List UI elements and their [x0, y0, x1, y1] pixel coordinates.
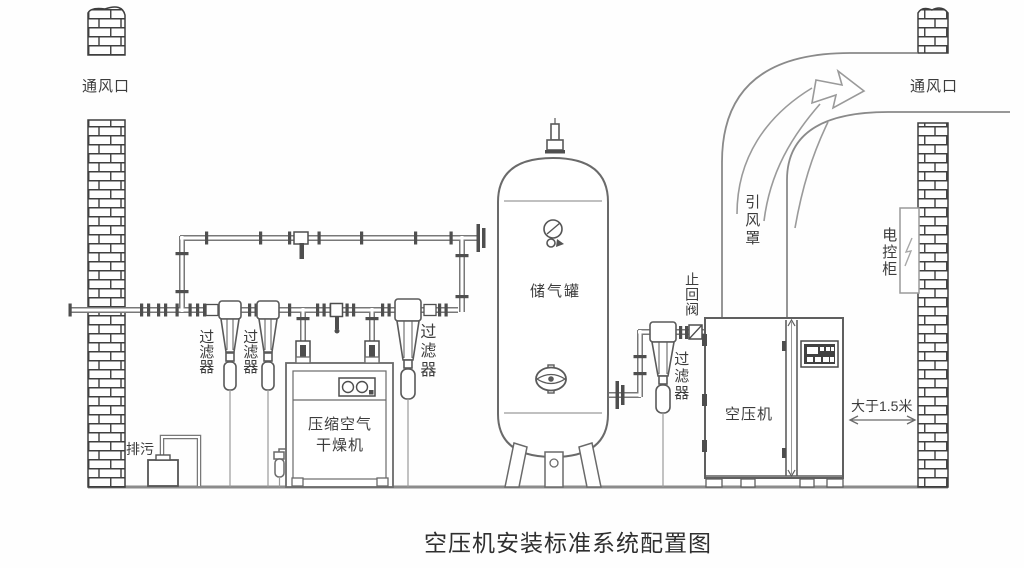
air-tank	[498, 158, 608, 487]
control-cabinet-label: 电控柜	[880, 227, 897, 278]
filter-1-label: 过滤器	[197, 329, 214, 374]
dryer-label-line1: 压缩空气	[287, 414, 393, 435]
dryer-label-line2: 干燥机	[287, 435, 393, 456]
duct-hood-label: 引风罩	[743, 194, 760, 248]
filter-4-label: 过滤器	[672, 351, 689, 402]
compressor-label: 空压机	[725, 406, 773, 423]
control-cabinet-box	[900, 208, 919, 293]
drain-collection	[148, 437, 199, 486]
dryer-panel	[339, 378, 375, 396]
tank-top-valve	[545, 118, 565, 154]
duct-hood-outline	[722, 53, 1010, 318]
diagram-title: 空压机安装标准系统配置图	[388, 524, 748, 558]
compressor-control-panel	[801, 341, 838, 367]
drain-label: 排污	[126, 441, 154, 457]
check-valve-label: 止回阀	[684, 272, 700, 317]
vent-right-label: 通风口	[910, 78, 958, 95]
top-pipe-valve	[294, 232, 308, 259]
dryer-label: 压缩空气 干燥机	[287, 414, 393, 456]
vent-left-label: 通风口	[82, 78, 130, 95]
dimension-arrow	[850, 416, 915, 424]
filter-1	[219, 301, 241, 487]
lower-pipe-valve	[331, 304, 343, 334]
filter-3-label: 过滤器	[416, 323, 434, 380]
filter-4	[650, 322, 676, 487]
filter-2-label: 过滤器	[241, 329, 258, 374]
diagram-artwork	[0, 0, 1024, 568]
dryer-drain-trap	[274, 449, 286, 487]
check-valve	[689, 325, 702, 339]
diagram-canvas: 通风口 通风口 过滤器 过滤器 过滤器 过滤器 排污 压缩空气 干燥机 储气罐 …	[0, 0, 1024, 568]
tank-label: 储气罐	[530, 283, 581, 300]
distance-label: 大于1.5米	[851, 398, 912, 414]
